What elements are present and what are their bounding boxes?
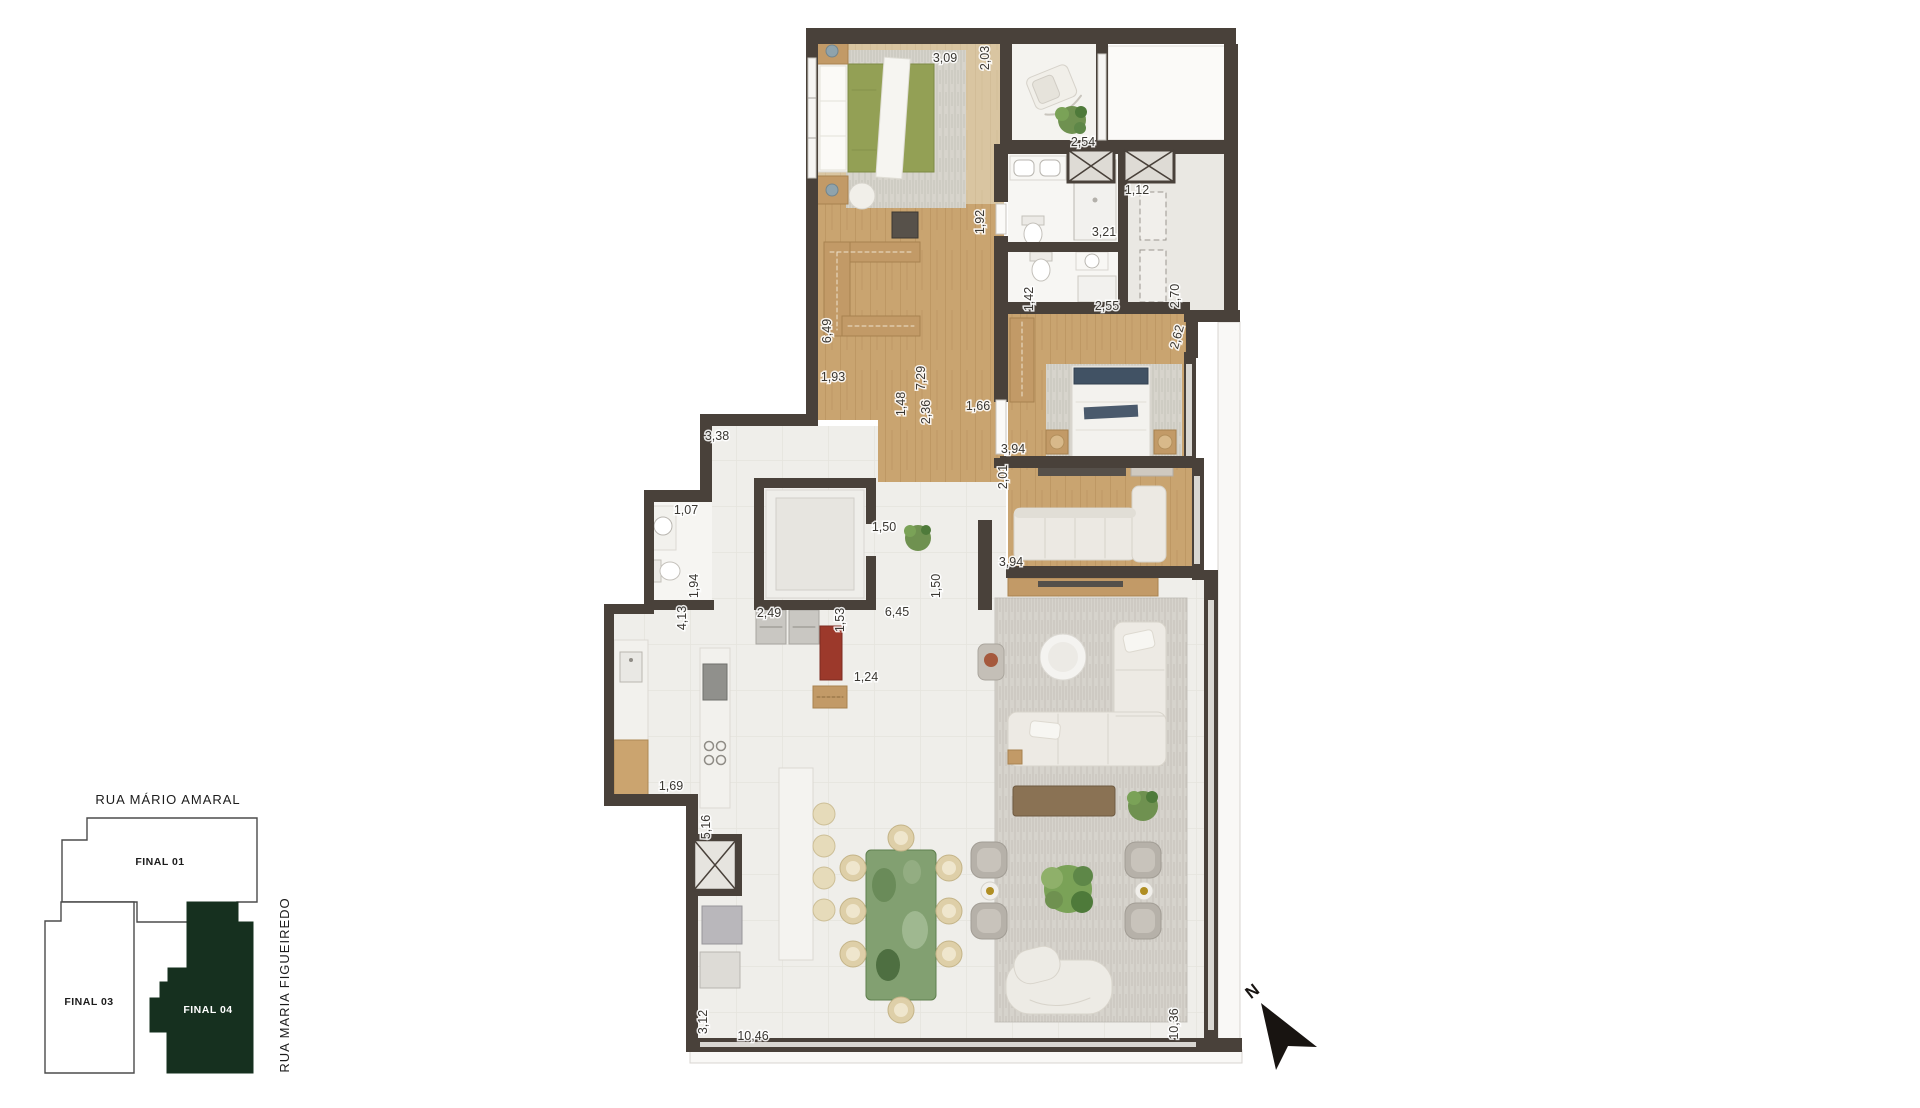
dimension-label: 6,49 xyxy=(820,319,834,343)
lavabo-toilet xyxy=(652,560,680,582)
dimension-label: 10,46 xyxy=(737,1029,768,1043)
living-glazing xyxy=(1208,600,1214,1030)
living-accent-armchair xyxy=(978,644,1004,680)
dimension-label: 1,66 xyxy=(966,399,990,413)
dining-table xyxy=(866,850,936,1000)
dimension-label: 7,29 xyxy=(914,366,928,390)
nightstand-bottom xyxy=(816,176,848,204)
compass: N xyxy=(1242,980,1317,1070)
street-name-right: RUA MARIA FIGUEIREDO xyxy=(277,897,292,1072)
living-sideboard xyxy=(1013,786,1115,816)
north-arrow-icon xyxy=(1261,1003,1317,1070)
second-bath-sink xyxy=(1076,252,1108,270)
second-bedroom-wardrobe xyxy=(1010,318,1034,402)
duct-x-service xyxy=(694,840,736,890)
keyplan-label-final03: FINAL 03 xyxy=(64,996,113,1008)
terrace-top-right xyxy=(1108,46,1226,140)
dimension-label: 1,48 xyxy=(894,392,908,416)
dimension-label: 1,24 xyxy=(854,670,878,684)
street-name-top: RUA MÁRIO AMARAL xyxy=(95,792,240,807)
dimension-label: 3,12 xyxy=(696,1010,710,1034)
bedroom2-window xyxy=(1186,364,1192,456)
keyplan-unit-final03 xyxy=(45,902,134,1073)
duct-x-2 xyxy=(1124,150,1174,182)
kitchen-counter xyxy=(614,640,648,796)
floor-plan-canvas: 3,092,032,541,923,211,121,422,552,702,62… xyxy=(0,0,1920,1108)
dimension-label: 1,69 xyxy=(659,779,683,793)
dimension-label: 3,94 xyxy=(999,555,1023,569)
dimension-label: 1,92 xyxy=(973,210,987,234)
dimension-label: 3,21 xyxy=(1092,225,1116,239)
dimension-label: 5,16 xyxy=(699,815,713,839)
keyplan: RUA MÁRIO AMARAL RUA MARIA FIGUEIREDO FI… xyxy=(45,792,292,1073)
kitchen-cook-island xyxy=(700,648,730,808)
dimension-label: 1,12 xyxy=(1125,183,1149,197)
dimension-label: 2,70 xyxy=(1168,284,1182,308)
master-bed xyxy=(818,57,934,179)
dimension-label: 2,55 xyxy=(1095,299,1119,313)
dimension-label: 2,01 xyxy=(996,465,1010,489)
dimension-label: 3,38 xyxy=(705,429,729,443)
kitchen-island-counter xyxy=(779,768,813,960)
elevator xyxy=(766,490,864,598)
dimension-label: 4,13 xyxy=(675,606,689,630)
second-bath-toilet xyxy=(1030,252,1052,281)
master-window xyxy=(808,58,816,178)
master-bath-toilet xyxy=(1022,216,1044,245)
bedroom-pouf xyxy=(849,183,875,209)
terrace-slab-right xyxy=(1218,322,1240,1052)
dimension-label: 1,07 xyxy=(674,503,698,517)
keyplan-unit-final04 xyxy=(150,902,253,1073)
balcony-window xyxy=(1098,54,1106,140)
keyplan-label-final04: FINAL 04 xyxy=(183,1004,232,1016)
tv-cabinet xyxy=(892,212,918,238)
dimension-label: 1,94 xyxy=(687,574,701,598)
red-cabinet xyxy=(820,626,842,680)
dimension-label: 3,09 xyxy=(933,51,957,65)
dimension-label: 1,42 xyxy=(1022,287,1036,311)
floor-plan-page: 3,092,032,541,923,211,121,422,552,702,62… xyxy=(0,0,1920,1108)
second-bed xyxy=(1072,366,1150,458)
dimension-label: 1,93 xyxy=(821,370,845,384)
dimension-label: 2,49 xyxy=(757,606,781,620)
living-coffee-table xyxy=(1040,634,1086,680)
master-bath-vanity xyxy=(1010,156,1066,180)
dimension-label: 2,54 xyxy=(1071,135,1095,149)
dimension-label: 1,53 xyxy=(833,608,847,632)
duct-x-1 xyxy=(1068,150,1114,182)
tv-room-window xyxy=(1194,476,1200,564)
dimension-label: 1,50 xyxy=(929,574,943,598)
dimension-label: 10,36 xyxy=(1167,1008,1181,1039)
dimension-label: 3,94 xyxy=(1001,442,1025,456)
tv-room-console xyxy=(1038,468,1126,476)
master-bath-door xyxy=(996,204,1006,234)
dimension-label: 2,03 xyxy=(978,46,992,70)
north-label: N xyxy=(1242,980,1263,1003)
dimension-label: 6,45 xyxy=(885,605,909,619)
bottom-glazing xyxy=(700,1042,1196,1047)
dimension-label: 1,50 xyxy=(872,520,896,534)
dimension-label: 2,36 xyxy=(919,400,933,424)
keyplan-label-final01: FINAL 01 xyxy=(135,856,184,868)
living-console xyxy=(1008,578,1158,596)
living-center-plant xyxy=(1041,865,1093,913)
